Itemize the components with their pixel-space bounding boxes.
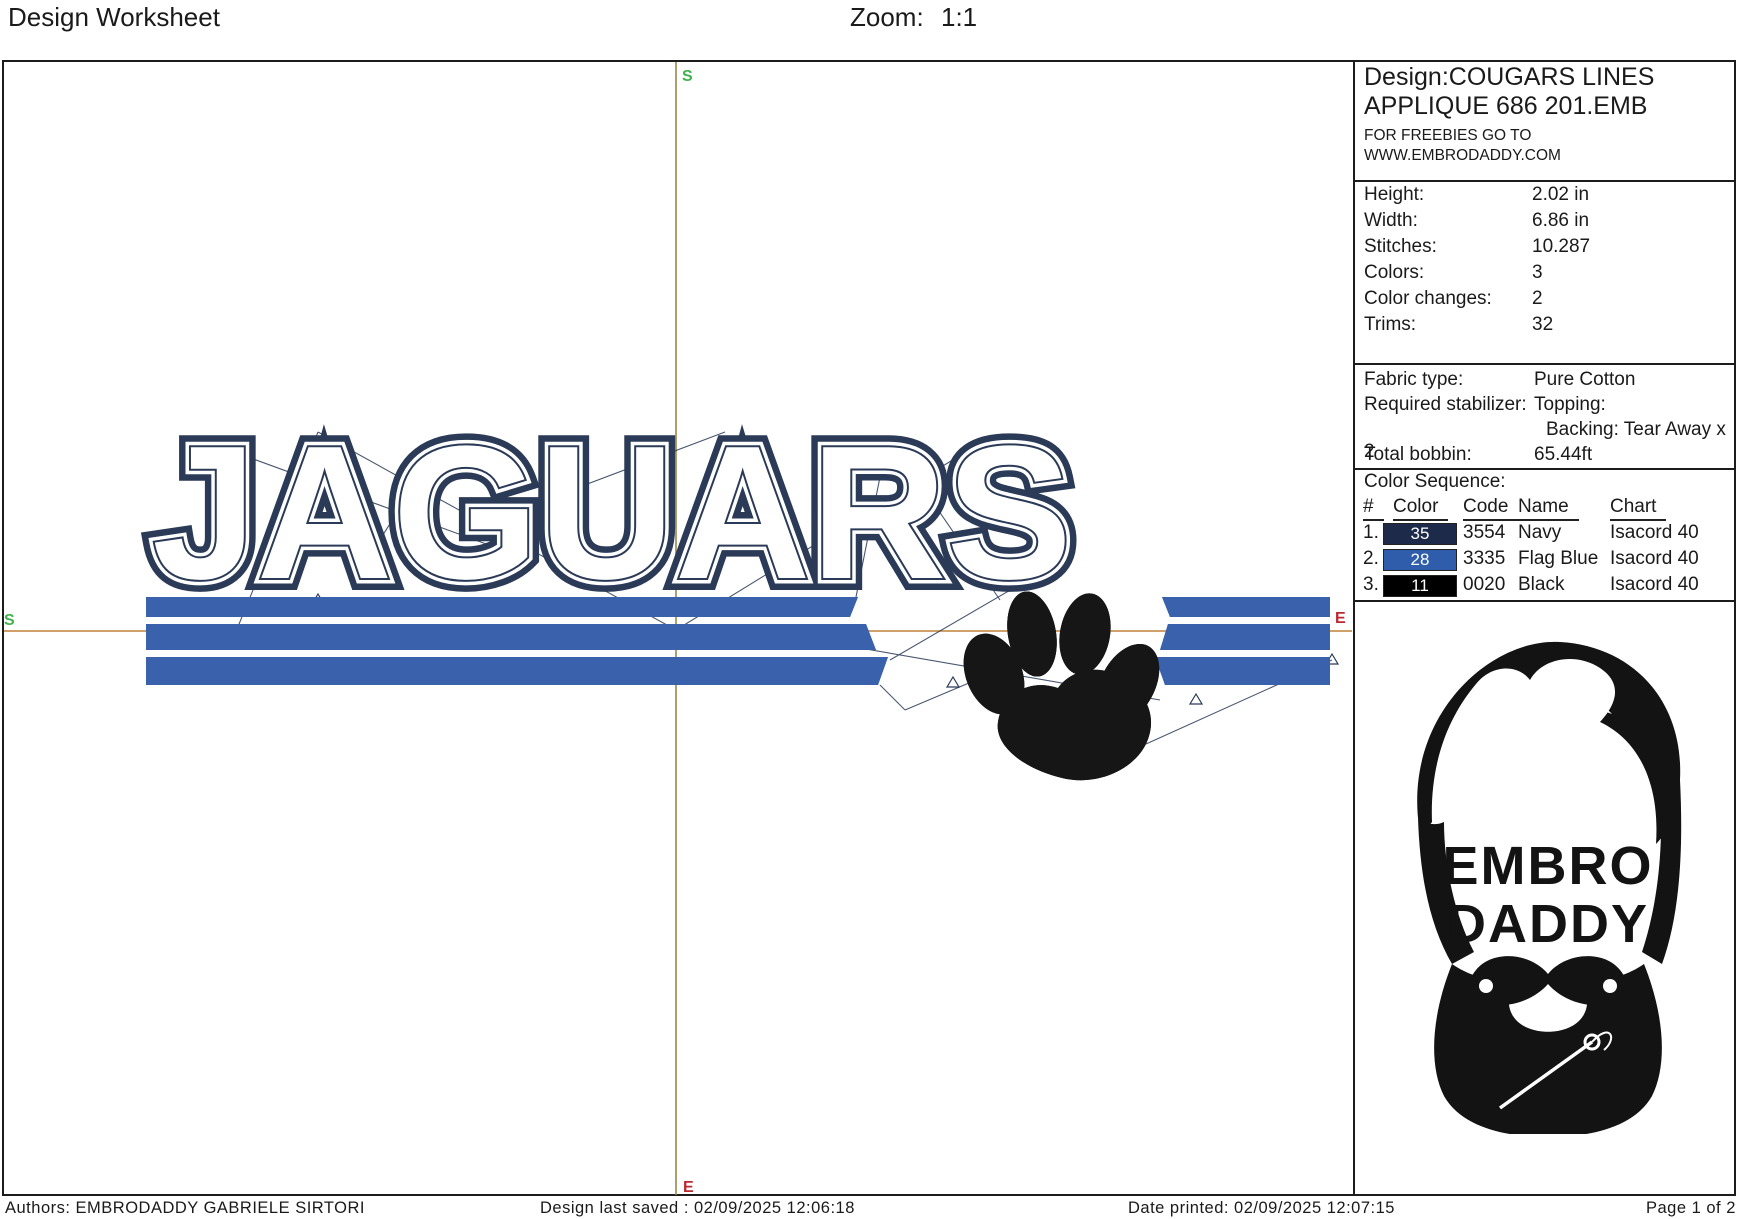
marker-end-bottom: E [683,1179,694,1196]
color-row-1: 1. 35 3554 Navy Isacord 40 [1355,522,1738,547]
thread-chart: Isacord 40 [1610,574,1699,596]
footer-authors: Authors: EMBRODADDY GABRIELE SIRTORI [5,1199,365,1218]
thread-name: Flag Blue [1518,548,1598,570]
stabilizer-label: Required stabilizer: [1364,394,1534,416]
logo-text-line1: EMBRO [1443,836,1654,896]
stat-label: Trims: [1364,314,1532,336]
thread-swatch: 28 [1383,549,1457,571]
stat-row-color-changes: Color changes:2 [1364,288,1734,314]
marker-start-top: S [682,68,693,85]
stat-label: Height: [1364,184,1532,206]
bobbin-label: Total bobbin: [1364,444,1534,466]
thread-swatch: 35 [1383,523,1457,545]
thread-chart: Isacord 40 [1610,548,1699,570]
footer-last-saved: Design last saved : 02/09/2025 12:06:18 [540,1199,855,1218]
stabilizer-row: Required stabilizer:Topping: [1364,394,1736,419]
marker-end-right: E [1335,610,1346,627]
freebies-link: WWW.EMBRODADDY.COM [1364,147,1561,165]
stat-value: 10.287 [1532,236,1590,257]
stat-value: 2.02 in [1532,184,1589,205]
col-header-chart: Chart [1610,496,1666,521]
thread-name: Black [1518,574,1564,596]
color-sequence-header-row: # Color Code Name Chart [1355,496,1738,521]
fabric-type-row: Fabric type:Pure Cotton [1364,369,1736,394]
stat-label: Stitches: [1364,236,1532,258]
color-row-index: 2. [1363,548,1379,570]
thread-name: Navy [1518,522,1561,544]
col-header-code: Code [1463,496,1518,521]
stat-label: Colors: [1364,262,1532,284]
color-sequence-title: Color Sequence: [1364,471,1506,493]
col-header-color: Color [1393,496,1448,521]
stat-row-trims: Trims:32 [1364,314,1734,340]
stat-row-stitches: Stitches:10.287 [1364,236,1734,262]
thread-code: 3554 [1463,522,1505,544]
design-name-line2: APPLIQUE 686 201.EMB [1364,92,1647,121]
color-row-3: 3. 11 0020 Black Isacord 40 [1355,574,1738,599]
design-text-fill: JAGUARS [152,407,1072,619]
stat-value: 32 [1532,314,1553,335]
embrodaddy-logo: EMBRO DADDY [1380,622,1716,1134]
marker-start-left: S [4,612,15,629]
thread-chart: Isacord 40 [1610,522,1699,544]
footer-date-printed: Date printed: 02/09/2025 12:07:15 [1128,1199,1395,1218]
color-row-index: 1. [1363,522,1379,544]
stat-row-width: Width:6.86 in [1364,210,1734,236]
total-bobbin-row: Total bobbin:65.44ft [1364,444,1736,469]
design-name-line1: Design:COUGARS LINES [1364,63,1654,92]
thread-swatch: 11 [1383,575,1457,597]
thread-code: 0020 [1463,574,1505,596]
freebies-line1: FOR FREEBIES GO TO [1364,127,1531,145]
stat-label: Color changes: [1364,288,1532,310]
color-row-index: 3. [1363,574,1379,596]
stat-row-colors: Colors:3 [1364,262,1734,288]
bobbin-value: 65.44ft [1534,444,1592,465]
footer-page-number: Page 1 of 2 [1646,1199,1736,1218]
col-header-num: # [1363,496,1384,521]
stat-label: Width: [1364,210,1532,232]
stabilizer-backing-row: Backing: Tear Away x 2 [1364,419,1736,444]
thread-code: 3335 [1463,548,1505,570]
color-row-2: 2. 28 3335 Flag Blue Isacord 40 [1355,548,1738,573]
col-header-name: Name [1518,496,1579,521]
stat-row-height: Height:2.02 in [1364,184,1734,210]
stat-value: 6.86 in [1532,210,1589,231]
logo-text-line2: DADDY [1447,894,1649,954]
stat-value: 3 [1532,262,1543,283]
fabric-value: Pure Cotton [1534,369,1635,390]
design-worksheet-page: Design Worksheet Zoom: 1:1 S S E E [0,0,1740,1219]
logo-wordmark: EMBRO DADDY [1443,836,1654,954]
stat-value: 2 [1532,288,1543,309]
fabric-label: Fabric type: [1364,369,1534,391]
design-lettering: JAGUARS JAGUARS JAGUARS JAGUARS [152,407,1072,619]
stabilizer-topping-value: Topping: [1534,394,1606,415]
